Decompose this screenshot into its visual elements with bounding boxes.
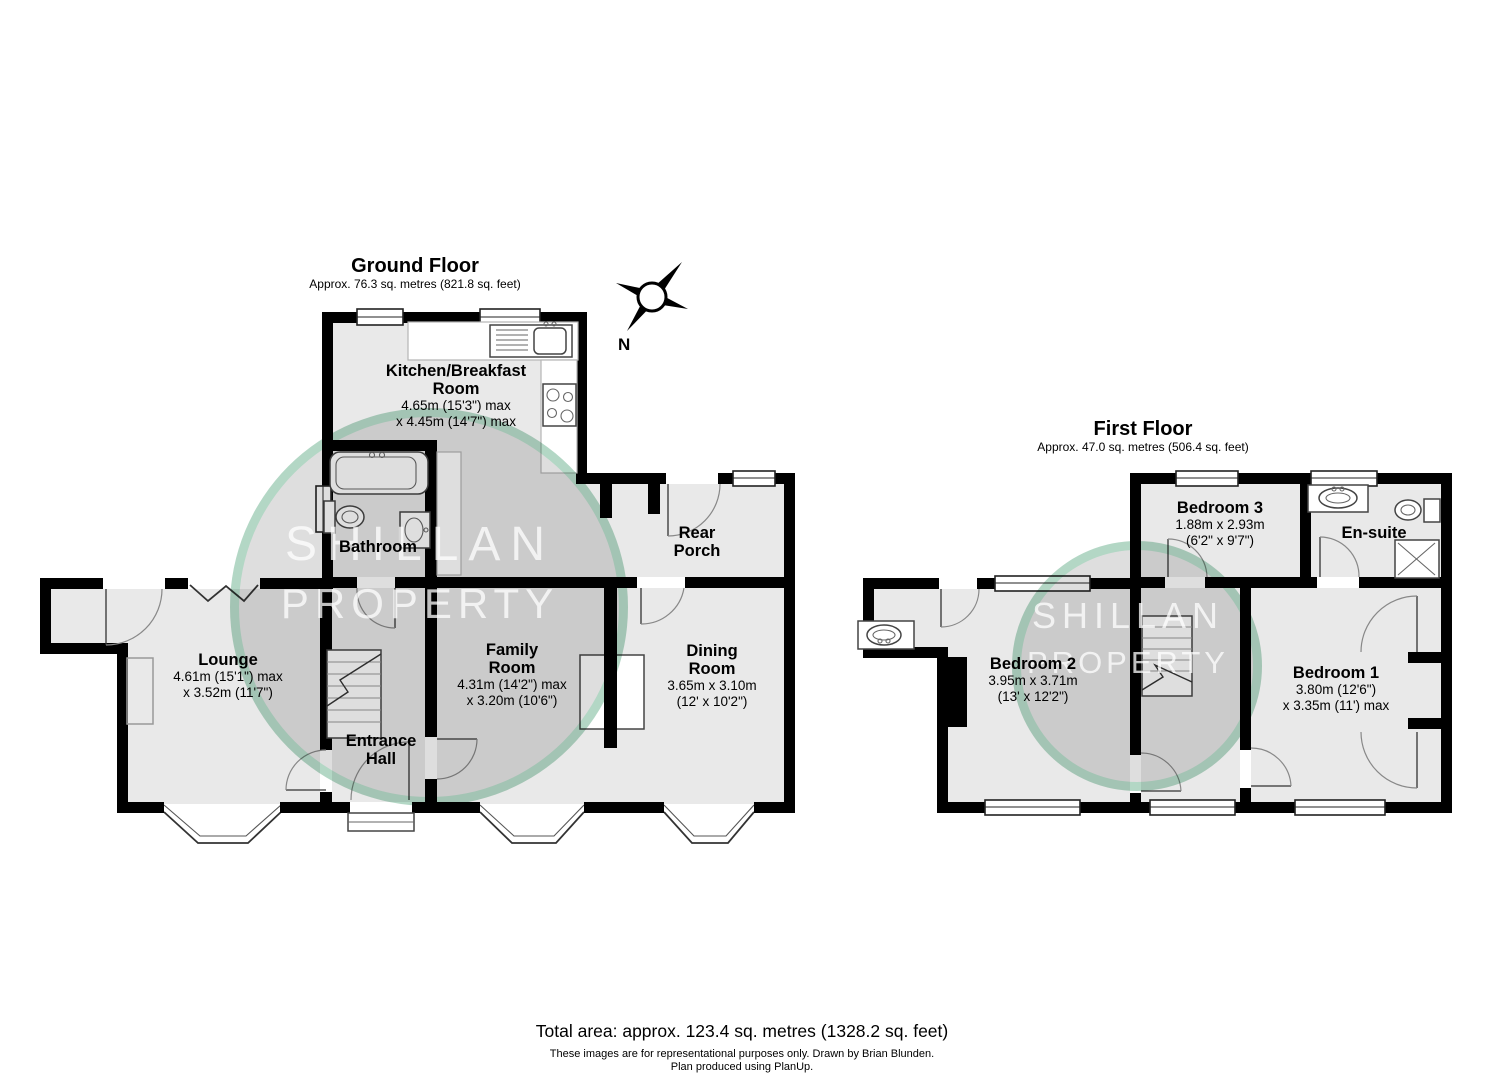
wall [40, 578, 51, 654]
ground-floor-subtitle: Approx. 76.3 sq. metres (821.8 sq. feet) [265, 277, 565, 291]
compass-rose: N [616, 262, 688, 354]
family-bay-window [480, 804, 584, 843]
ensuite-window [1311, 471, 1377, 486]
watermark-text: PROPERTY [170, 580, 670, 628]
wall [863, 578, 939, 589]
landing-window [1150, 800, 1235, 815]
wall [1408, 718, 1441, 729]
room-label-entrance-hall: Entrance Hall [271, 732, 491, 768]
wall [280, 802, 350, 813]
produced-by-text: Plan produced using PlanUp. [442, 1061, 1042, 1074]
wall [1240, 788, 1251, 813]
wall [117, 802, 164, 813]
wall [977, 578, 995, 589]
wall [648, 484, 660, 514]
room-label-kitchen: Kitchen/Breakfast Room 4.65m (15'3") max… [336, 362, 576, 429]
shower [1395, 540, 1439, 578]
room-label-bedroom-1: Bedroom 1 3.80m (12'6") x 3.35m (11') ma… [1216, 664, 1456, 713]
wall [1130, 793, 1141, 813]
rear-porch-window [733, 471, 775, 486]
landing-basin [858, 621, 914, 649]
wall [320, 792, 332, 813]
wall [1408, 652, 1441, 663]
first-floor-title: First Floor [993, 418, 1293, 440]
first-floor-subtitle: Approx. 47.0 sq. metres (506.4 sq. feet) [993, 440, 1293, 454]
watermark-text: SHILLAN [928, 595, 1328, 637]
wall [685, 577, 784, 588]
wall [584, 802, 664, 813]
room-label-dining-room: Dining Room 3.65m x 3.10m (12' x 10'2") [592, 642, 832, 709]
ground-floor-title-block: Ground Floor Approx. 76.3 sq. metres (82… [265, 255, 565, 291]
room-label-rear-porch: Rear Porch [587, 524, 807, 560]
room-label-bedroom-2: Bedroom 2 3.95m x 3.71m (13' x 12'2") [913, 655, 1153, 704]
lounge-bay-window [164, 804, 281, 843]
kitchen-sink [490, 322, 572, 357]
room-label-en-suite: En-suite [1264, 524, 1484, 542]
first-floor-title-block: First Floor Approx. 47.0 sq. metres (506… [993, 418, 1293, 454]
total-area-text: Total area: approx. 123.4 sq. metres (13… [442, 1021, 1042, 1041]
dining-bay-window [664, 804, 754, 843]
bedroom1-window [1295, 800, 1385, 815]
disclaimer-text: These images are for representational pu… [442, 1048, 1042, 1061]
ground-floor-title: Ground Floor [265, 255, 565, 277]
wall [754, 802, 795, 813]
wall [937, 802, 985, 813]
kitchen-window [357, 309, 403, 325]
bedroom3-window [1176, 471, 1238, 486]
room-label-lounge: Lounge 4.61m (15'1") max x 3.52m (11'7") [108, 651, 348, 700]
wall [1385, 802, 1452, 813]
floorplan-page: N SHILLAN PROPERTY SHILLAN PROPERTY Grou… [0, 0, 1485, 1080]
compass-hub [638, 283, 666, 311]
bedroom2-window [985, 800, 1080, 815]
compass-north-label: N [618, 335, 630, 354]
room-label-bathroom: Bathroom [268, 538, 488, 556]
